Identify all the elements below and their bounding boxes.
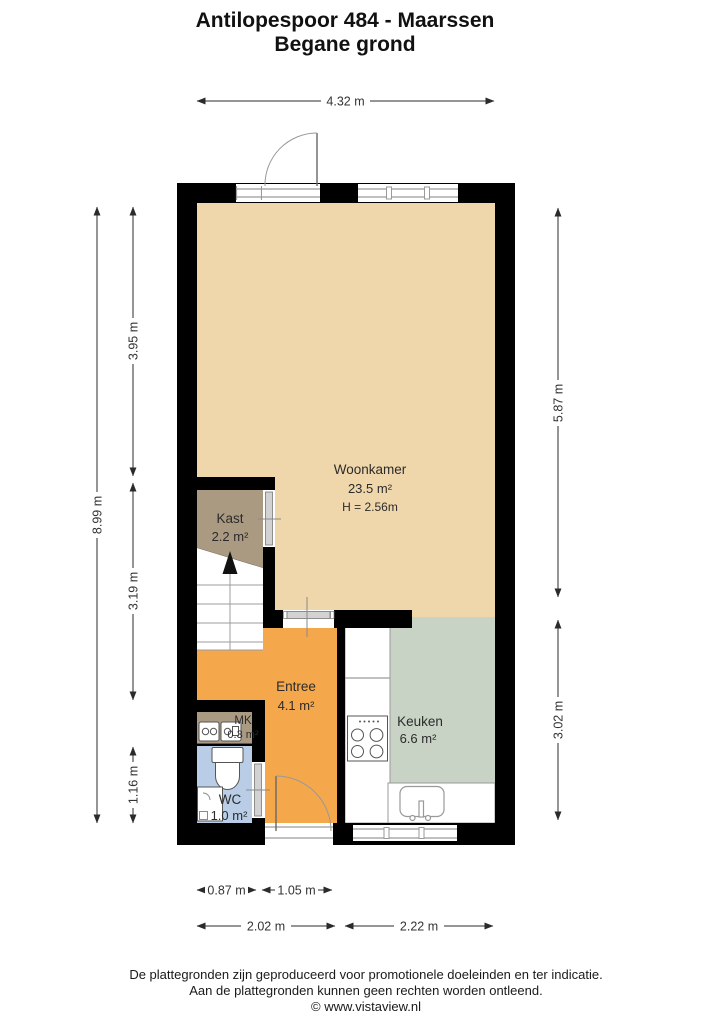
svg-text:5.87 m: 5.87 m xyxy=(552,384,566,422)
svg-text:Keuken: Keuken xyxy=(397,714,443,729)
dim-left-segment-2: 3.19 m xyxy=(125,483,141,700)
window-bottom xyxy=(353,825,457,841)
dim-right-segment-2: 3.02 m xyxy=(550,620,566,820)
svg-text:0.87 m: 0.87 m xyxy=(207,884,245,898)
window-top-right xyxy=(358,184,458,202)
kitchen-sink-icon xyxy=(400,787,444,821)
disclaimer: De plattegronden zijn geproduceerd voor … xyxy=(129,967,602,1014)
svg-text:WC: WC xyxy=(219,792,242,807)
svg-text:2.02 m: 2.02 m xyxy=(247,920,285,934)
wall-right xyxy=(495,183,515,845)
svg-text:Aan de plattegronden kunnen ge: Aan de plattegronden kunnen geen rechten… xyxy=(189,983,542,998)
svg-text:Woonkamer: Woonkamer xyxy=(334,462,407,477)
dim-left-total: 8.99 m xyxy=(89,207,105,823)
wall-mk-wc-divider xyxy=(197,744,252,747)
window-top-left xyxy=(236,184,262,202)
dim-top-width: 4.32 m xyxy=(197,93,494,109)
svg-text:23.5 m²: 23.5 m² xyxy=(348,481,393,496)
svg-text:1.05 m: 1.05 m xyxy=(277,884,315,898)
page-subtitle: Begane grond xyxy=(274,33,415,56)
dim-bottom-main-1: 2.02 m xyxy=(197,918,335,934)
svg-text:2.2 m²: 2.2 m² xyxy=(212,529,250,544)
dim-bottom-main-2: 2.22 m xyxy=(345,918,493,934)
dim-left-segment-1: 3.95 m xyxy=(125,207,141,476)
entree-floor xyxy=(263,626,337,823)
svg-text:Kast: Kast xyxy=(216,511,243,526)
svg-text:Entree: Entree xyxy=(276,679,316,694)
wall-left xyxy=(177,183,197,845)
wall-top xyxy=(177,183,515,203)
svg-text:© www.vistaview.nl: © www.vistaview.nl xyxy=(311,999,421,1014)
svg-text:1.0 m²: 1.0 m² xyxy=(211,808,249,823)
svg-text:0.3 m²: 0.3 m² xyxy=(227,729,259,741)
svg-text:1.16 m: 1.16 m xyxy=(127,766,141,804)
svg-text:H = 2.56m: H = 2.56m xyxy=(342,500,398,514)
svg-text:6.6 m²: 6.6 m² xyxy=(400,731,438,746)
stove-icon xyxy=(348,716,388,761)
dim-bottom-small-1: 0.87 m xyxy=(197,882,256,898)
door-top xyxy=(262,133,320,202)
dim-right-segment-1: 5.87 m xyxy=(550,208,566,597)
svg-text:4.1 m²: 4.1 m² xyxy=(278,698,316,713)
dim-bottom-small-2: 1.05 m xyxy=(262,882,332,898)
svg-text:De plattegronden zijn geproduc: De plattegronden zijn geproduceerd voor … xyxy=(129,967,602,982)
wall-bottom xyxy=(177,823,515,845)
svg-text:2.22 m: 2.22 m xyxy=(400,920,438,934)
svg-text:3.19 m: 3.19 m xyxy=(127,572,141,610)
svg-text:4.32 m: 4.32 m xyxy=(326,95,364,109)
page-title: Antilopespoor 484 - Maarssen xyxy=(196,9,495,32)
svg-text:8.99 m: 8.99 m xyxy=(91,496,105,534)
floor-plan-svg: Antilopespoor 484 - Maarssen Begane gron… xyxy=(0,0,724,1024)
svg-text:MK: MK xyxy=(234,715,252,727)
svg-text:3.95 m: 3.95 m xyxy=(127,322,141,360)
dim-left-segment-3: 1.16 m xyxy=(125,747,141,823)
svg-text:3.02 m: 3.02 m xyxy=(552,701,566,739)
wall-entree-keuken xyxy=(337,610,345,823)
